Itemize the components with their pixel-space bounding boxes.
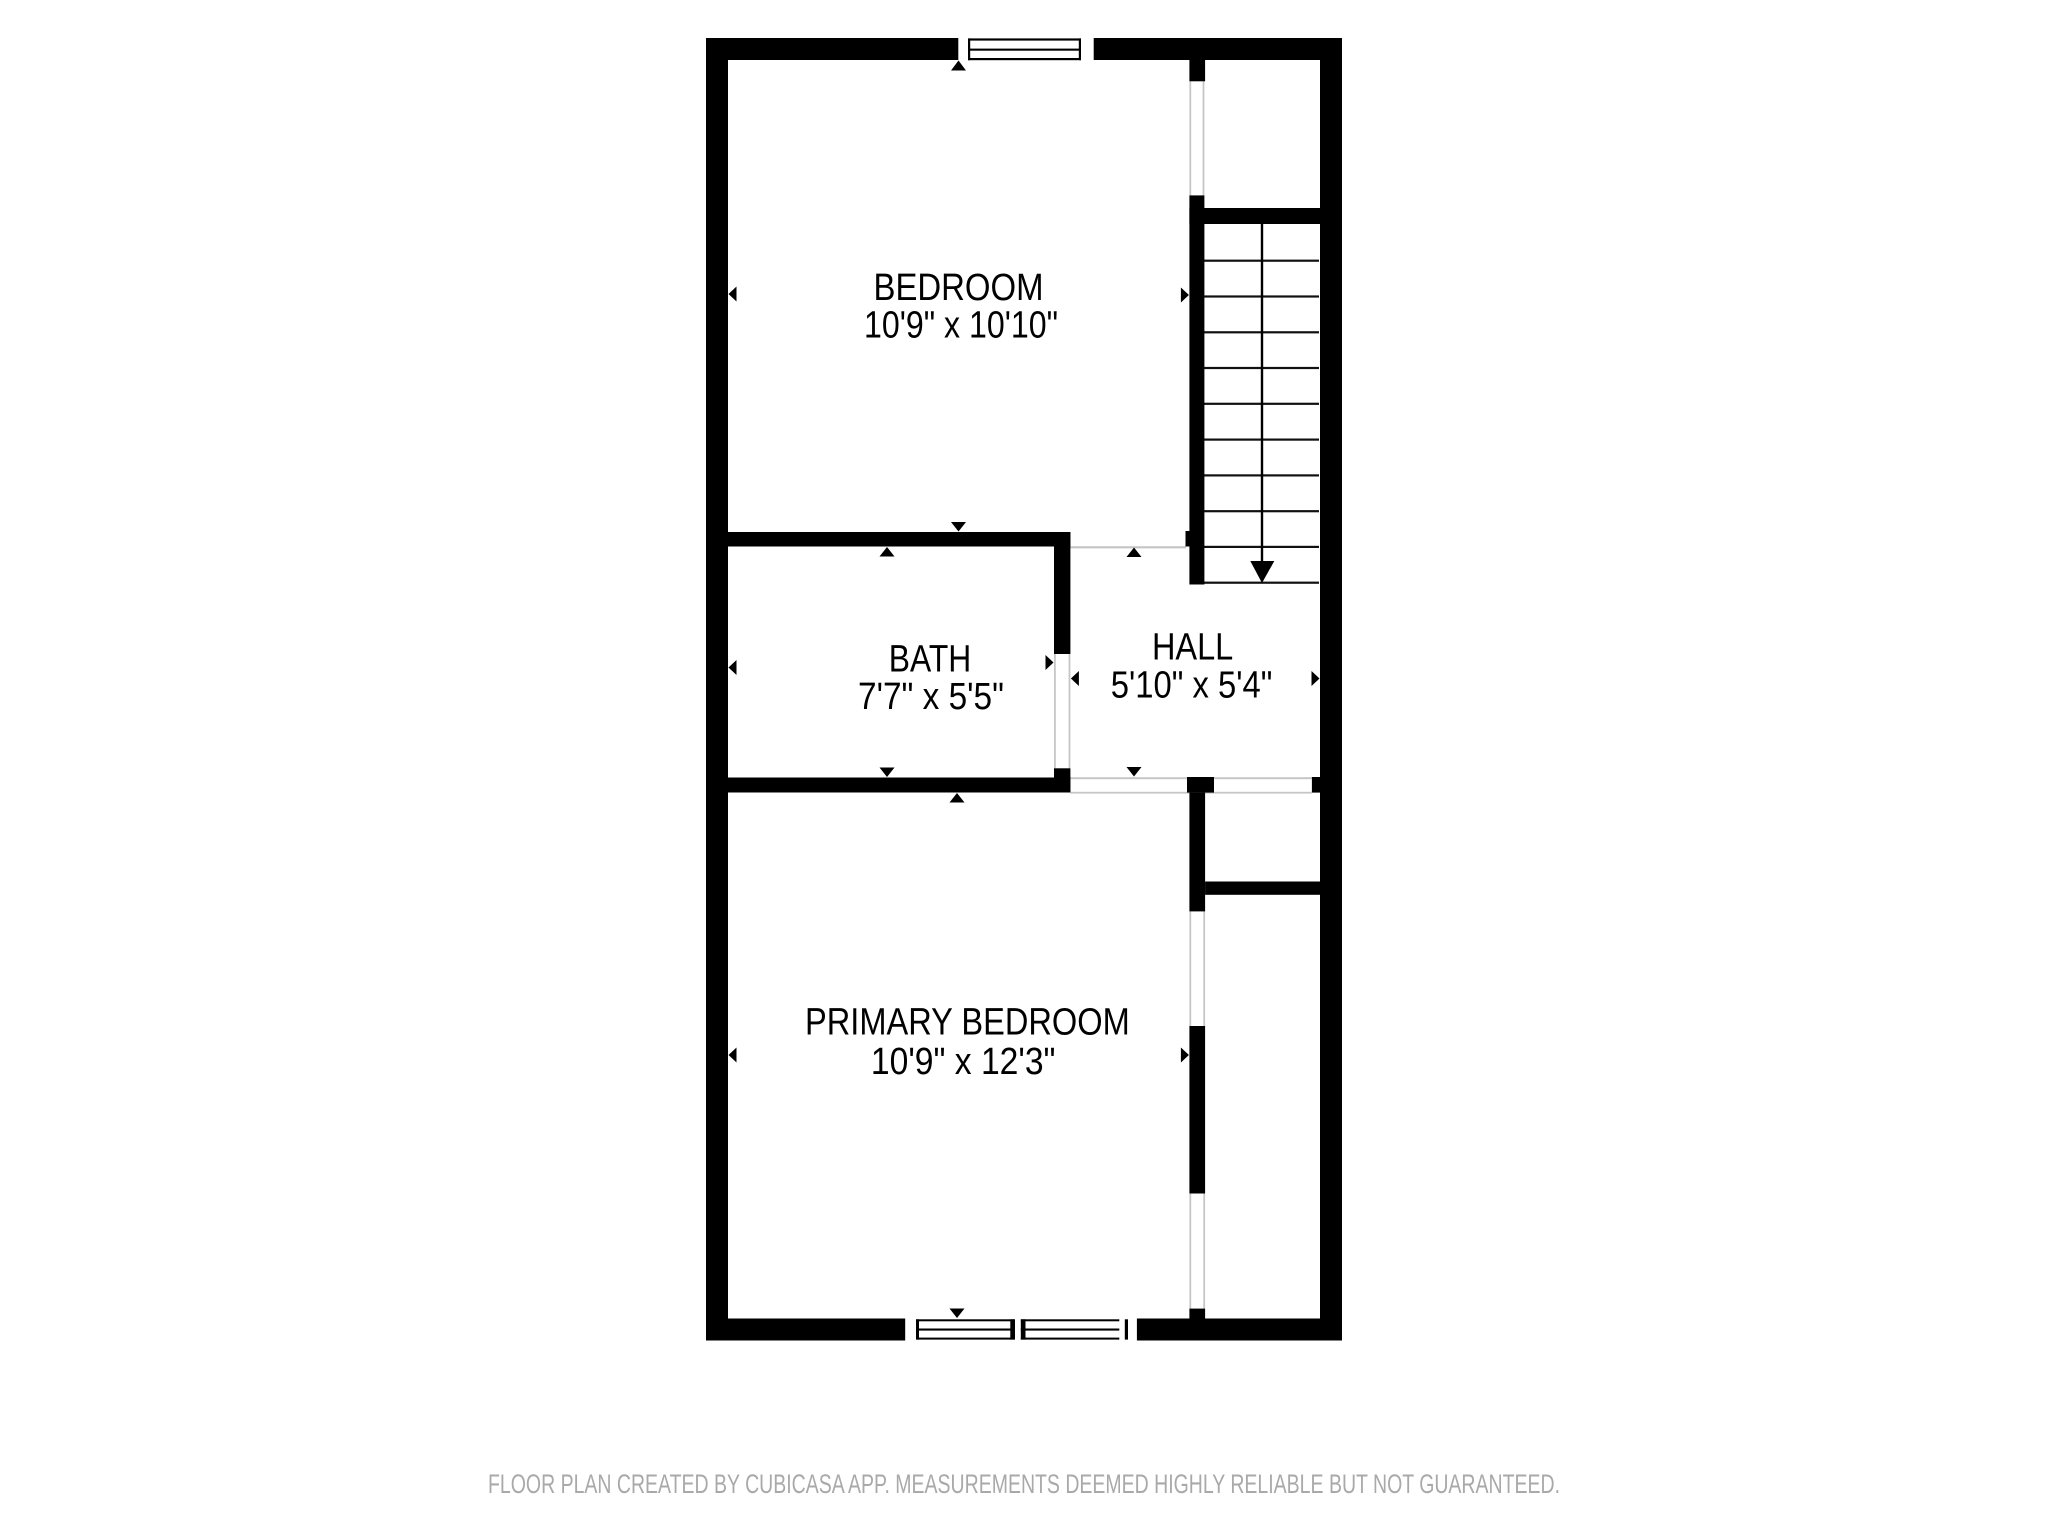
svg-text:10'9" x 10'10": 10'9" x 10'10" [864, 305, 1058, 347]
svg-text:BATH: BATH [889, 638, 972, 680]
svg-text:BEDROOM: BEDROOM [874, 267, 1044, 309]
svg-text:FLOOR PLAN CREATED BY CUBICASA: FLOOR PLAN CREATED BY CUBICASA APP. MEAS… [488, 1469, 1560, 1499]
svg-text:7'7" x 5'5": 7'7" x 5'5" [858, 676, 1004, 718]
svg-text:PRIMARY BEDROOM: PRIMARY BEDROOM [805, 1002, 1130, 1044]
svg-text:5'10" x 5'4": 5'10" x 5'4" [1111, 665, 1273, 707]
svg-text:HALL: HALL [1152, 627, 1233, 669]
svg-text:10'9" x 12'3": 10'9" x 12'3" [871, 1041, 1056, 1083]
